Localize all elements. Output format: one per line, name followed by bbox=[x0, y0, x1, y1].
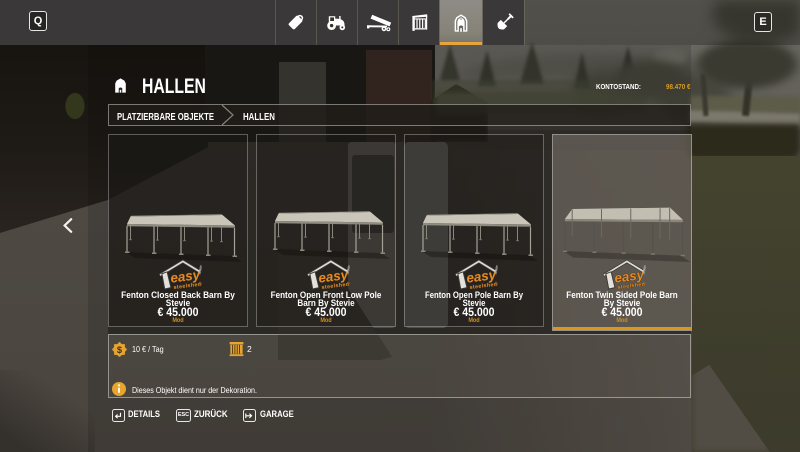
svg-text:$: $ bbox=[117, 345, 123, 355]
